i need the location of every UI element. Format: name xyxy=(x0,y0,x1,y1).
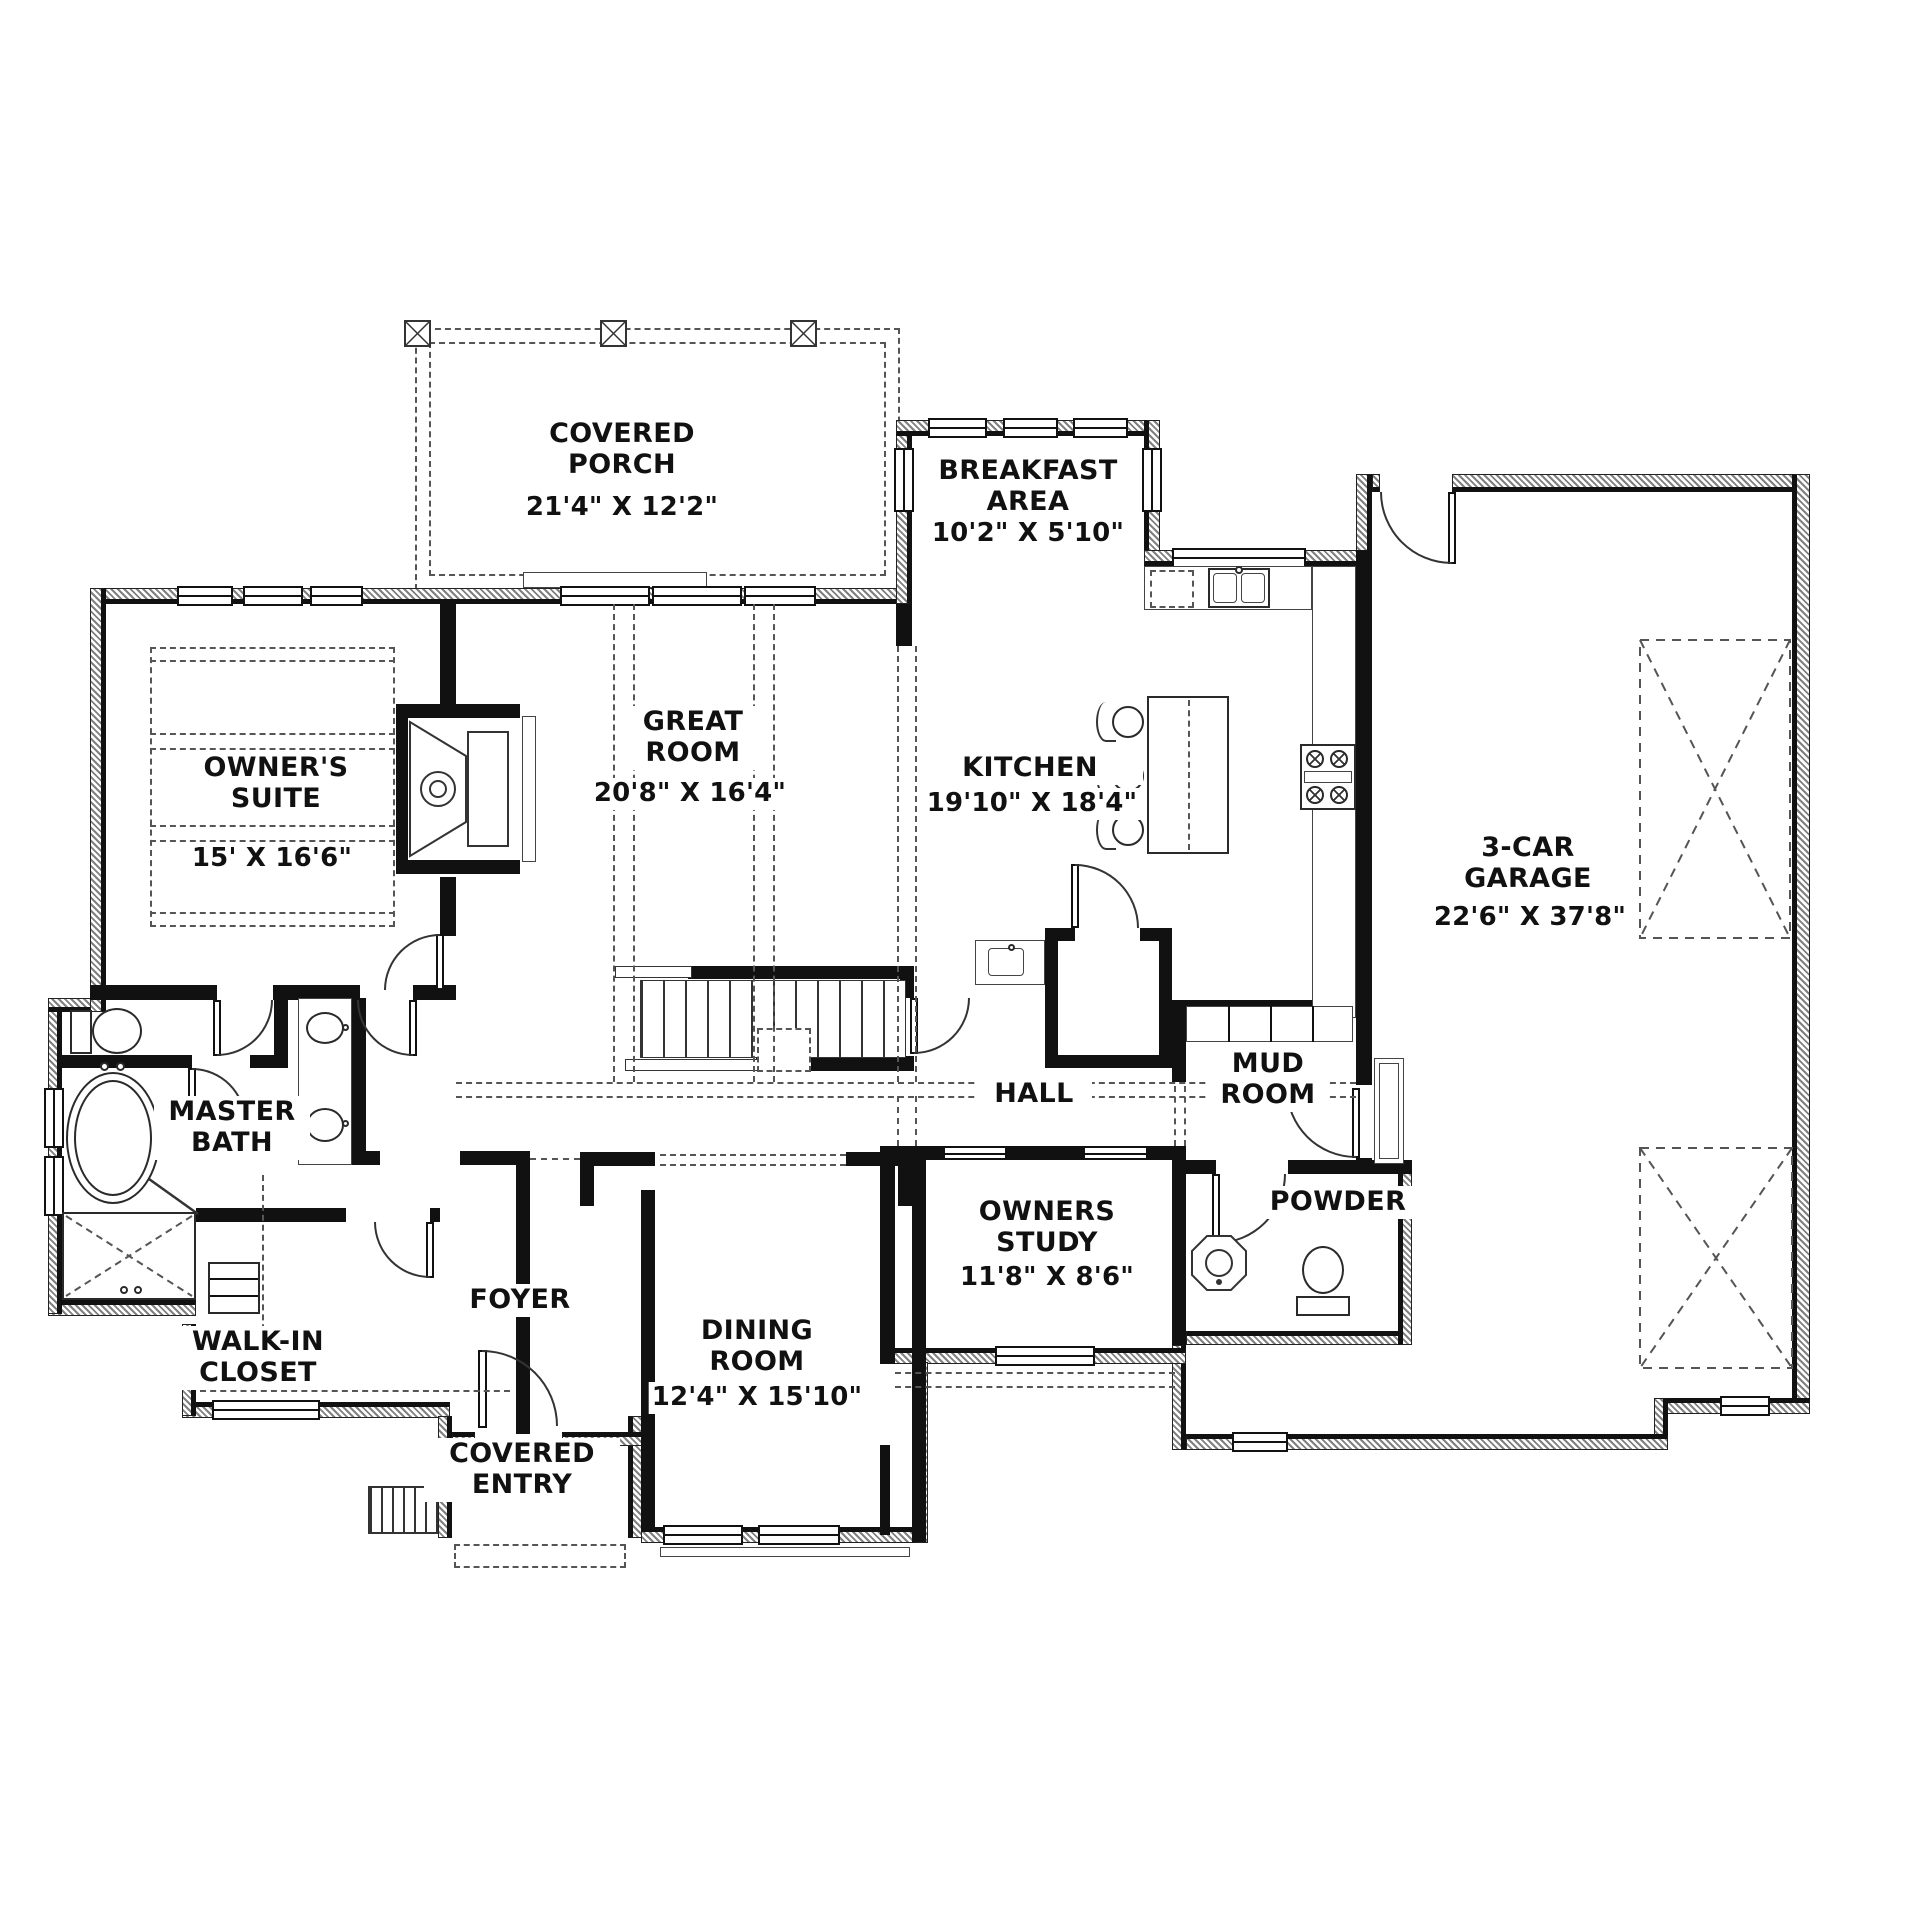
kitchen-sink-basin xyxy=(1213,573,1237,603)
dishwasher xyxy=(1150,570,1194,608)
room-label-master-bath: MASTER BATH xyxy=(154,1096,310,1160)
door-swing xyxy=(217,1000,273,1056)
room-label-hall: HALL xyxy=(976,1078,1092,1111)
cubby-divider xyxy=(1270,1006,1272,1042)
cubby-divider xyxy=(1228,1006,1230,1042)
fireplace-wall xyxy=(396,704,408,874)
wall xyxy=(440,877,456,936)
wall xyxy=(274,998,288,1068)
tray-line xyxy=(150,660,395,662)
room-label-covered-porch: COVERED PORCH xyxy=(524,418,720,482)
window-bath xyxy=(44,1156,64,1216)
fireplace-wall xyxy=(396,704,520,718)
study-sidelite xyxy=(1083,1146,1148,1160)
dining-ledge xyxy=(660,1547,910,1557)
fireplace-hearth xyxy=(522,716,536,862)
wall-dining-east xyxy=(912,1152,926,1542)
window xyxy=(652,586,742,606)
window-closet xyxy=(212,1400,320,1420)
window xyxy=(560,586,650,606)
stool xyxy=(1112,706,1144,738)
car-space-icon xyxy=(1638,1146,1794,1370)
window xyxy=(1142,448,1162,512)
door-swing xyxy=(374,1222,430,1278)
island-centerline xyxy=(1188,700,1190,850)
burner-icon xyxy=(1306,750,1324,768)
powder-toilet-tank xyxy=(1296,1296,1350,1316)
shower-head-icon xyxy=(120,1286,128,1294)
burner-icon xyxy=(1330,786,1348,804)
wall-pantry xyxy=(1045,1055,1172,1068)
room-dims-great-room: 20'8" X 16'4" xyxy=(591,778,789,810)
porch-post-icon xyxy=(600,320,627,347)
wall-dining-entry-post xyxy=(898,1166,912,1206)
room-dims-owners-suite: 15' X 16'6" xyxy=(189,843,355,875)
stair-rail xyxy=(625,1059,758,1071)
exterior-wall-garage-top xyxy=(1372,474,1380,492)
garage-service-door-swing xyxy=(1380,492,1452,564)
shower-x-icon xyxy=(64,1214,194,1298)
wall-garage-left xyxy=(1356,1158,1372,1174)
window-kitchen-sink xyxy=(1172,548,1306,568)
exterior-wall-garage-top xyxy=(1452,474,1810,492)
fireplace-wall xyxy=(396,860,520,874)
shower-head-icon xyxy=(134,1286,142,1294)
tray-line xyxy=(150,912,395,914)
window xyxy=(928,418,987,438)
room-label-dining-room: DINING ROOM xyxy=(687,1315,828,1379)
wall-pantry xyxy=(1045,928,1058,1068)
room-label-owners-study: OWNERS STUDY xyxy=(969,1196,1125,1260)
window-study xyxy=(995,1346,1095,1366)
toilet-bowl xyxy=(92,1008,142,1054)
room-label-great-room: GREAT ROOM xyxy=(620,706,766,770)
wall-garage-left xyxy=(1356,550,1372,1085)
burner-icon xyxy=(1330,750,1348,768)
wall xyxy=(62,1055,192,1068)
porch-post-icon xyxy=(790,320,817,347)
window xyxy=(744,586,816,606)
wall-study-west xyxy=(880,1146,895,1364)
exterior-wall-garage-right xyxy=(1792,474,1810,1414)
window-dining xyxy=(663,1525,743,1545)
entry-stoop xyxy=(454,1544,626,1568)
tray-line xyxy=(150,825,395,827)
opening-line xyxy=(915,1096,917,1146)
master-tub-inner xyxy=(74,1080,152,1196)
window-garage xyxy=(1720,1396,1770,1416)
wall-dining-entry-post xyxy=(580,1152,655,1166)
wall-dining-entry-post xyxy=(580,1166,594,1206)
stair-rail xyxy=(615,966,692,978)
toilet-tank xyxy=(70,1010,92,1054)
linen-shelf xyxy=(210,1278,258,1280)
burner-icon xyxy=(1306,786,1324,804)
study-sidelite xyxy=(943,1146,1007,1160)
door-swing xyxy=(384,934,440,990)
room-dims-owners-study: 11'8" X 8'6" xyxy=(957,1262,1137,1294)
window xyxy=(1073,418,1128,438)
wall-mud-west xyxy=(1172,1000,1186,1082)
beam-line xyxy=(613,604,615,1082)
window xyxy=(177,586,233,606)
kitchen-sink-basin xyxy=(1241,573,1265,603)
powder-toilet-bowl xyxy=(1302,1246,1344,1294)
powder-sink-icon xyxy=(1190,1234,1248,1292)
faucet-icon xyxy=(1235,566,1243,574)
window-dining xyxy=(758,1525,840,1545)
window xyxy=(894,448,914,512)
roof-overhang xyxy=(895,1372,1175,1374)
car-space-icon xyxy=(1638,638,1792,940)
room-label-kitchen: KITCHEN xyxy=(917,752,1143,785)
faucet-icon xyxy=(1008,944,1015,951)
vanity-sink xyxy=(306,1108,344,1142)
wall xyxy=(430,1208,440,1222)
beam-line xyxy=(773,604,775,1082)
tray-line xyxy=(150,748,395,750)
room-dims-dining-room: 12'4" X 15'10" xyxy=(649,1382,866,1414)
range-center xyxy=(1304,771,1352,783)
wall xyxy=(90,985,217,1000)
tray-line xyxy=(150,840,395,842)
room-label-mud-room: MUD ROOM xyxy=(1208,1048,1329,1112)
cubby-divider xyxy=(1312,1006,1314,1042)
linen-shelf xyxy=(210,1295,258,1297)
tub-faucet-icon xyxy=(100,1062,109,1071)
room-dims-covered-porch: 21'4" X 12'2" xyxy=(523,492,721,524)
room-label-breakfast-area: BREAKFAST AREA xyxy=(920,455,1136,519)
exterior-wall xyxy=(90,588,106,1012)
window xyxy=(243,586,303,606)
floor-plan: COVERED PORCH 21'4" X 12'2" BREAKFAST AR… xyxy=(0,0,1920,1920)
wall-great-kitchen-stub xyxy=(896,604,912,646)
wall-pantry xyxy=(1159,928,1172,1068)
window xyxy=(310,586,363,606)
front-door-swing xyxy=(482,1350,558,1426)
stool-back xyxy=(1096,702,1116,742)
room-label-owners-suite: OWNER'S SUITE xyxy=(188,752,364,816)
window-bath xyxy=(44,1088,64,1148)
door-swing xyxy=(914,998,970,1054)
exterior-wall-powder-bottom xyxy=(1186,1331,1412,1345)
room-label-powder: POWDER xyxy=(1255,1186,1421,1219)
cased-opening xyxy=(530,1158,580,1160)
wall-stairs-east xyxy=(900,1056,914,1071)
cased-opening xyxy=(1184,1086,1186,1146)
closet-rod xyxy=(200,1390,510,1392)
room-label-walk-in-closet: WALK-IN CLOSET xyxy=(170,1326,346,1390)
opening-line xyxy=(915,646,917,1082)
wall xyxy=(250,1055,274,1068)
faucet-icon xyxy=(342,1120,349,1127)
fireplace-icon xyxy=(408,718,520,860)
tray-line xyxy=(150,733,395,735)
room-label-foyer: FOYER xyxy=(452,1284,588,1317)
beam-line xyxy=(633,604,635,1082)
exterior-wall-shower-bottom xyxy=(48,1300,196,1316)
wall-stairs xyxy=(688,966,906,979)
cased-opening xyxy=(660,1154,846,1156)
room-dims-kitchen: 19'10" X 18'4" xyxy=(924,788,1141,820)
room-dims-garage: 22'6" X 37'8" xyxy=(1431,902,1629,934)
cased-opening xyxy=(1174,1086,1176,1146)
wall xyxy=(440,604,456,704)
wall-dining-west xyxy=(641,1190,655,1532)
window xyxy=(1003,418,1058,438)
opening-line xyxy=(897,646,899,1082)
roof-overhang xyxy=(895,1386,1175,1388)
wall-study-east xyxy=(1172,1174,1186,1345)
wall xyxy=(352,1151,380,1165)
tub-faucet-icon xyxy=(116,1062,125,1071)
wall xyxy=(196,1208,346,1222)
wall-dining-nook xyxy=(880,1445,890,1535)
window-garage xyxy=(1232,1432,1288,1452)
bar-sink xyxy=(988,948,1024,976)
vanity-sink xyxy=(306,1012,344,1044)
wall-mud-west xyxy=(1172,1150,1186,1174)
wall-mud-powder xyxy=(1186,1160,1216,1174)
garage-stoop-inner xyxy=(1379,1063,1399,1159)
porch-post-icon xyxy=(404,320,431,347)
linen-cabinet xyxy=(208,1262,260,1314)
faucet-icon xyxy=(342,1024,349,1031)
cased-opening xyxy=(660,1164,846,1166)
room-dims-breakfast-area: 10'2" X 5'10" xyxy=(929,518,1127,550)
stair-landing-dashed xyxy=(757,1028,811,1072)
beam-line xyxy=(753,604,755,1082)
room-label-garage: 3-CAR GARAGE xyxy=(1450,832,1606,896)
room-label-covered-entry: COVERED ENTRY xyxy=(424,1438,620,1502)
opening-line xyxy=(897,1096,899,1146)
pantry-door-swing xyxy=(1075,864,1139,928)
